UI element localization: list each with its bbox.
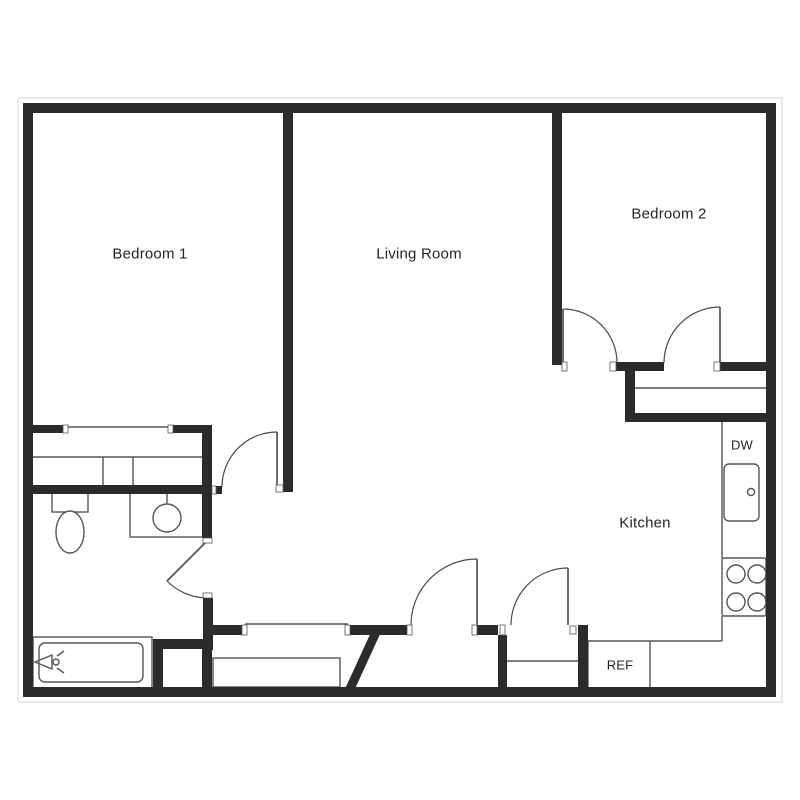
appliance-label-refrigerator: REF — [607, 658, 634, 673]
door-swing-arc — [664, 307, 720, 363]
wall-segment — [202, 649, 212, 687]
door-jamb — [407, 625, 412, 635]
wall-segment — [625, 413, 766, 422]
wall-segment — [578, 625, 588, 687]
door-jamb — [63, 425, 68, 433]
door-leaf — [167, 541, 207, 581]
door-jamb — [345, 625, 350, 635]
room-label-living-room: Living Room — [376, 246, 462, 263]
wall-segment — [153, 639, 212, 649]
appliance-label-dishwasher: DW — [731, 438, 753, 453]
door-jamb — [203, 593, 212, 598]
wall-segment — [477, 625, 498, 635]
wall-segment — [33, 425, 63, 433]
door-jamb — [500, 625, 505, 635]
door-swing-arc — [222, 432, 277, 487]
fixture-circle — [727, 565, 745, 583]
room-label-kitchen: Kitchen — [619, 515, 670, 532]
toilet-bowl — [56, 511, 84, 553]
floor-plan-page: Bedroom 1 Living Room Bedroom 2 Kitchen … — [0, 0, 800, 800]
door-jamb — [562, 362, 567, 371]
fixture-circle — [748, 489, 755, 496]
wall-segment — [23, 687, 776, 697]
wall-segment — [23, 103, 776, 113]
wall-segment — [350, 625, 407, 635]
door-jamb — [472, 625, 477, 635]
door-swing-arc — [563, 309, 617, 363]
door-jamb — [276, 485, 283, 492]
door-jamb — [610, 362, 616, 371]
door-jamb — [242, 625, 247, 635]
fixture-circle — [727, 593, 745, 611]
room-label-bedroom-2: Bedroom 2 — [631, 206, 706, 223]
wall-segment — [498, 635, 507, 687]
wall-segment-diagonal — [349, 630, 377, 691]
wall-segment — [720, 362, 766, 371]
floor-plan-drawing — [0, 0, 800, 800]
door-jamb — [203, 538, 212, 543]
door-jamb — [714, 362, 720, 371]
door-jamb — [168, 425, 173, 433]
room-label-bedroom-1: Bedroom 1 — [112, 246, 187, 263]
wall-segment — [283, 113, 293, 492]
fixture-outline — [52, 493, 88, 512]
wall-segment — [153, 649, 163, 687]
wall-segment — [33, 485, 212, 494]
wall-segment — [766, 103, 776, 697]
fixture-circle — [748, 565, 766, 583]
wall-segment — [552, 113, 562, 365]
fixture-circle — [53, 659, 59, 665]
plan-outline-halo — [18, 98, 782, 702]
wall-segment — [202, 425, 212, 538]
door-swing-arc — [411, 559, 477, 625]
door-swing-arc — [167, 581, 207, 598]
door-swing-arc — [511, 568, 568, 625]
wall-segment — [216, 486, 222, 494]
fixture-circle — [748, 593, 766, 611]
door-jamb — [212, 486, 216, 494]
wall-segment — [615, 362, 664, 371]
fixture-circle — [153, 504, 181, 532]
fixture-outline — [213, 658, 340, 687]
door-jamb — [570, 626, 576, 634]
wall-segment — [23, 103, 33, 697]
wall-segment — [213, 625, 242, 635]
